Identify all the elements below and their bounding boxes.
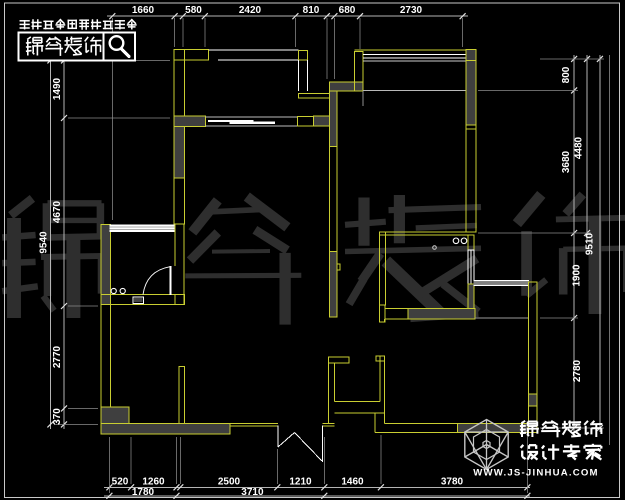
- svg-text:800: 800: [561, 66, 572, 83]
- svg-text:4670: 4670: [52, 200, 63, 223]
- svg-text:1780: 1780: [132, 487, 155, 498]
- svg-text:WWW.JS-JINHUA.COM: WWW.JS-JINHUA.COM: [473, 468, 598, 479]
- svg-text:9540: 9540: [39, 231, 50, 254]
- svg-text:1490: 1490: [52, 77, 63, 100]
- svg-text:2500: 2500: [218, 477, 241, 488]
- svg-text:2420: 2420: [239, 5, 262, 16]
- svg-text:3710: 3710: [241, 487, 264, 498]
- svg-text:810: 810: [303, 5, 320, 16]
- svg-text:9510: 9510: [585, 232, 596, 255]
- svg-text:680: 680: [339, 5, 356, 16]
- svg-text:2770: 2770: [52, 345, 63, 368]
- svg-text:1460: 1460: [341, 477, 364, 488]
- svg-text:1260: 1260: [142, 477, 165, 488]
- svg-text:2730: 2730: [400, 5, 423, 16]
- svg-text:1900: 1900: [572, 264, 583, 287]
- svg-text:3680: 3680: [561, 150, 572, 173]
- svg-text:3780: 3780: [441, 477, 464, 488]
- svg-text:370: 370: [52, 408, 63, 425]
- svg-text:1660: 1660: [132, 5, 155, 16]
- svg-text:520: 520: [112, 477, 129, 488]
- svg-text:4480: 4480: [574, 136, 585, 159]
- svg-text:2780: 2780: [572, 359, 583, 382]
- svg-text:1210: 1210: [289, 477, 312, 488]
- svg-text:580: 580: [185, 5, 202, 16]
